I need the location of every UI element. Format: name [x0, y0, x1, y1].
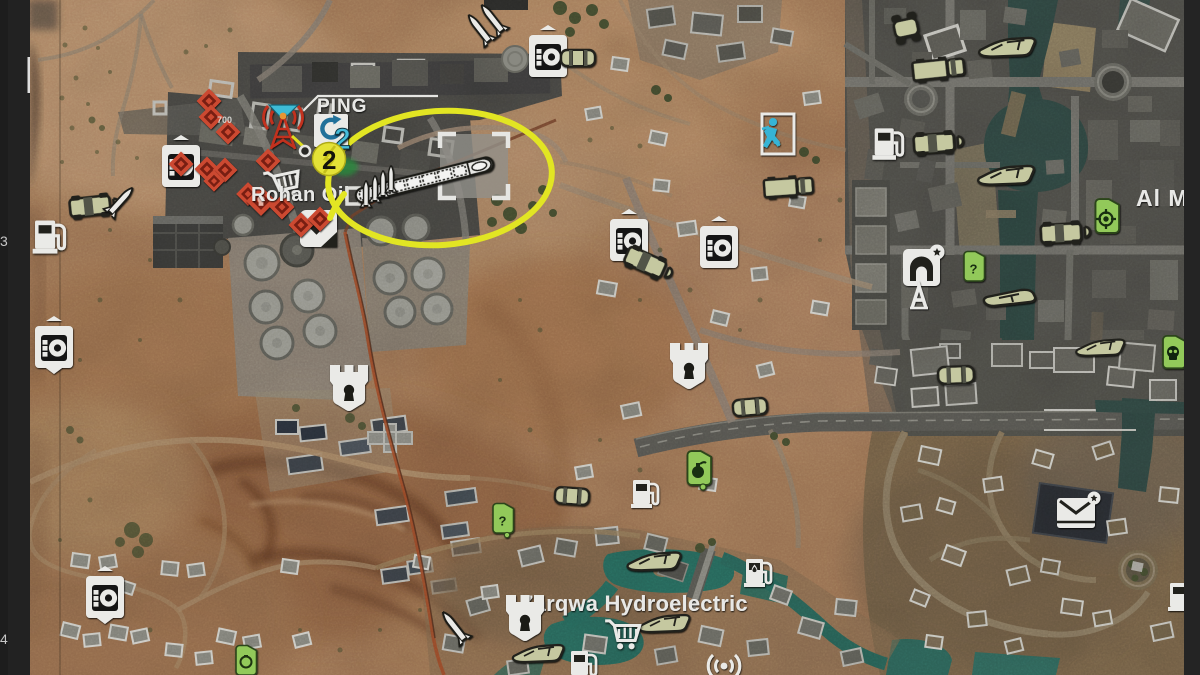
svg-text:?: ? [499, 514, 507, 529]
svg-text:?: ? [970, 262, 978, 277]
svg-text:Zarqwa Hydroelectric: Zarqwa Hydroelectric [520, 591, 748, 616]
svg-text:3: 3 [0, 233, 8, 249]
svg-text:700: 700 [217, 115, 232, 125]
svg-text:4: 4 [0, 631, 8, 647]
svg-text:PING: PING [317, 96, 367, 117]
svg-text:2: 2 [322, 145, 336, 175]
